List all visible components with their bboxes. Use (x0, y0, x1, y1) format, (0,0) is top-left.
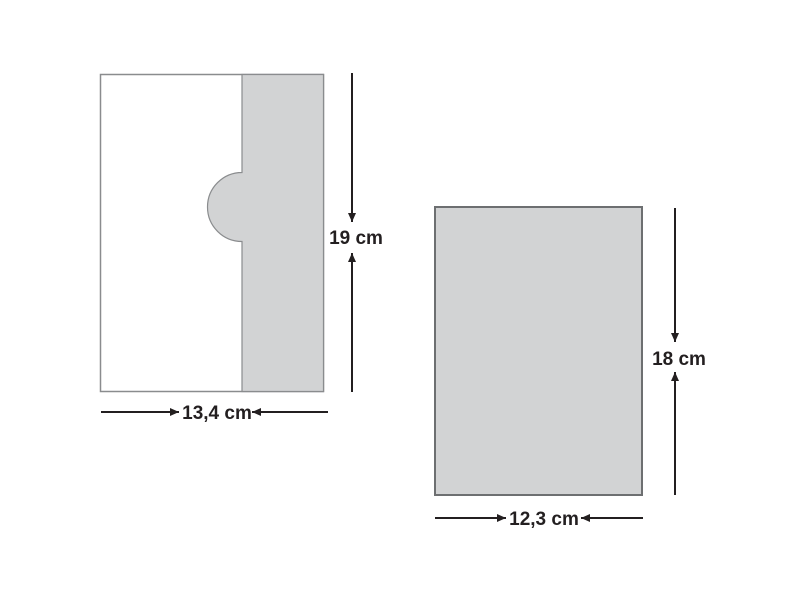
left-height-label: 19 cm (329, 228, 383, 249)
diagram-canvas: 19 cm 13,4 cm 18 cm 12,3 cm (0, 0, 800, 600)
left-height-dimension: 19 cm (329, 73, 383, 392)
right-height-dimension: 18 cm (652, 208, 706, 495)
right-width-label: 12,3 cm (509, 509, 579, 530)
right-width-dimension: 12,3 cm (435, 509, 643, 530)
left-shape-group: 19 cm 13,4 cm (101, 73, 383, 424)
right-shape-group: 18 cm 12,3 cm (435, 207, 706, 530)
left-width-label: 13,4 cm (182, 403, 252, 424)
card-rect (435, 207, 642, 495)
dimension-diagram: 19 cm 13,4 cm 18 cm 12,3 cm (0, 0, 800, 600)
left-width-dimension: 13,4 cm (101, 403, 328, 424)
right-height-label: 18 cm (652, 349, 706, 370)
